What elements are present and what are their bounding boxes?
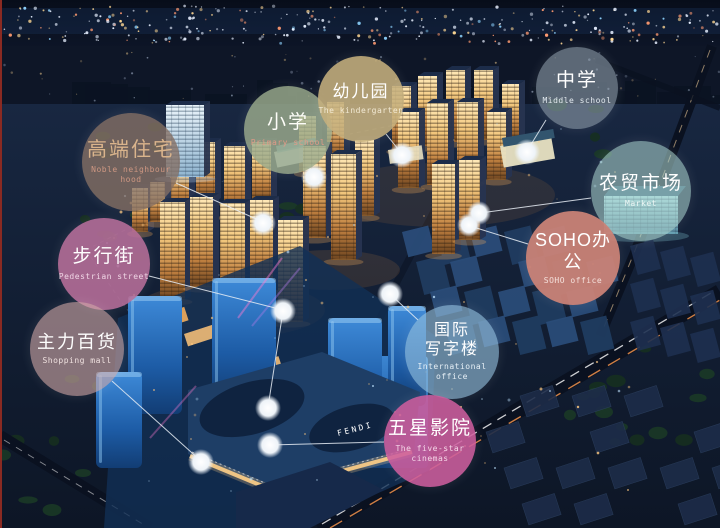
label-bubble-kindergarten: 幼儿园 The kindergarten bbox=[318, 56, 404, 142]
location-dot bbox=[377, 281, 403, 307]
label-en: Noble neighbour hood bbox=[82, 165, 180, 185]
location-dots bbox=[188, 139, 540, 475]
label-bubble-shopping-mall: 主力百货 Shopping mall bbox=[30, 302, 124, 396]
label-bubble-middle-school: 中学 Middle school bbox=[536, 47, 618, 129]
connector-line bbox=[112, 381, 201, 461]
label-bubble-international-office: 国际 写字楼 International office bbox=[405, 305, 499, 399]
left-edge-accent bbox=[0, 0, 2, 528]
connector-line bbox=[176, 183, 263, 222]
aerial-night-rendering: FENDI bbox=[0, 0, 720, 528]
label-zh: 主力百货 bbox=[37, 332, 117, 353]
label-zh: 高端住宅 bbox=[87, 139, 175, 163]
label-en: Shopping mall bbox=[42, 356, 111, 366]
label-bubble-noble-residence: 高端住宅 Noble neighbour hood bbox=[82, 113, 180, 211]
connector-lines bbox=[112, 120, 591, 461]
location-dot bbox=[250, 210, 276, 236]
label-zh: 五星影院 bbox=[388, 418, 472, 440]
label-zh: SOHO办公 bbox=[526, 230, 620, 272]
label-zh: 幼儿园 bbox=[333, 82, 390, 102]
connector-line bbox=[268, 311, 283, 407]
label-en: The kindergarten bbox=[318, 106, 403, 116]
label-en: The five-star cinemas bbox=[384, 444, 476, 464]
label-en: SOHO office bbox=[544, 276, 602, 286]
label-zh: 农贸市场 bbox=[599, 173, 683, 195]
location-dot bbox=[257, 432, 283, 458]
label-zh: 步行街 bbox=[72, 246, 135, 268]
location-dot bbox=[389, 142, 415, 168]
label-zh: 国际 写字楼 bbox=[425, 322, 479, 360]
location-dot bbox=[255, 395, 281, 421]
label-en: Primary school bbox=[251, 138, 325, 148]
connector-line bbox=[270, 442, 384, 445]
label-en: International office bbox=[417, 362, 486, 382]
location-dot bbox=[514, 139, 540, 165]
label-zh: 中学 bbox=[556, 70, 598, 92]
label-zh: 小学 bbox=[267, 112, 309, 134]
label-en: Pedestrian street bbox=[59, 272, 149, 282]
label-bubble-cinema: 五星影院 The five-star cinemas bbox=[384, 395, 476, 487]
location-dot bbox=[188, 449, 214, 475]
label-en: Market bbox=[625, 199, 657, 209]
label-bubble-soho-office: SOHO办公 SOHO office bbox=[526, 211, 620, 305]
label-en: Middle school bbox=[542, 96, 611, 106]
location-dot bbox=[457, 213, 481, 237]
location-dot bbox=[270, 298, 296, 324]
label-bubble-pedestrian-street: 步行街 Pedestrian street bbox=[58, 218, 150, 310]
connector-line bbox=[149, 276, 283, 310]
